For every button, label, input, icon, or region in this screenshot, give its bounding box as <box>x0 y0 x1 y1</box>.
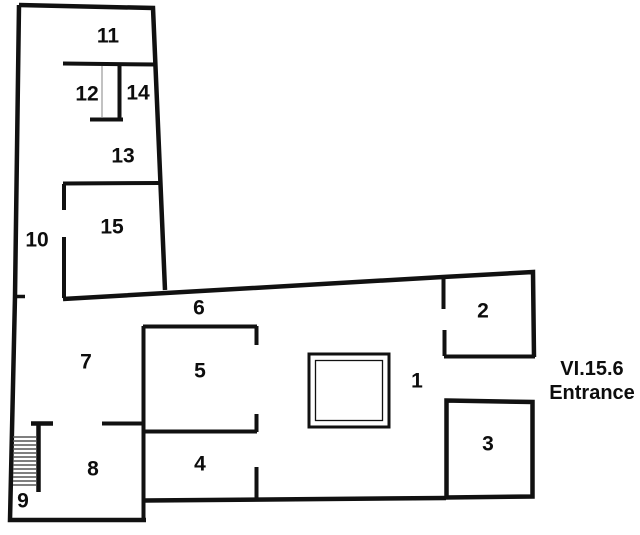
entrance-address: VI.15.6 <box>544 357 640 381</box>
room-label-14: 14 <box>126 83 149 104</box>
room-label-10: 10 <box>25 230 48 251</box>
room-label-8: 8 <box>87 459 99 480</box>
impluvium <box>309 354 389 427</box>
room11-south-wall <box>63 64 156 65</box>
stairs-tread-hatch <box>13 437 36 485</box>
floor-plan: 1 2 3 4 5 6 7 8 9 10 11 12 13 14 15 VI.1… <box>0 0 640 535</box>
room-label-7: 7 <box>80 352 92 373</box>
room-label-1: 1 <box>411 371 423 392</box>
room-label-13: 13 <box>111 146 134 167</box>
impluvium-outer-border <box>309 354 389 427</box>
room-label-12: 12 <box>75 84 98 105</box>
entrance-word: Entrance <box>544 381 640 405</box>
north-long-wall-and-room2-right-wall <box>63 272 534 357</box>
lower-wing-interior-walls <box>102 326 257 520</box>
room-label-2: 2 <box>477 301 489 322</box>
entrance-label: VI.15.6 Entrance <box>544 357 640 405</box>
room-label-3: 3 <box>482 434 494 455</box>
room-label-6: 6 <box>193 298 205 319</box>
floor-plan-svg <box>0 0 640 535</box>
room2-west-wall-with-door-gap <box>444 277 445 356</box>
room-label-4: 4 <box>194 454 206 475</box>
impluvium-inner-border <box>316 361 383 421</box>
room2-walls <box>444 277 536 357</box>
bottom-right-wall <box>144 498 446 501</box>
room15-north-wall <box>63 183 159 184</box>
room-label-9: 9 <box>17 491 29 512</box>
room-label-5: 5 <box>194 361 206 382</box>
room-label-11: 11 <box>97 26 119 47</box>
room-label-15: 15 <box>100 217 123 238</box>
stairs-room9 <box>13 423 53 492</box>
